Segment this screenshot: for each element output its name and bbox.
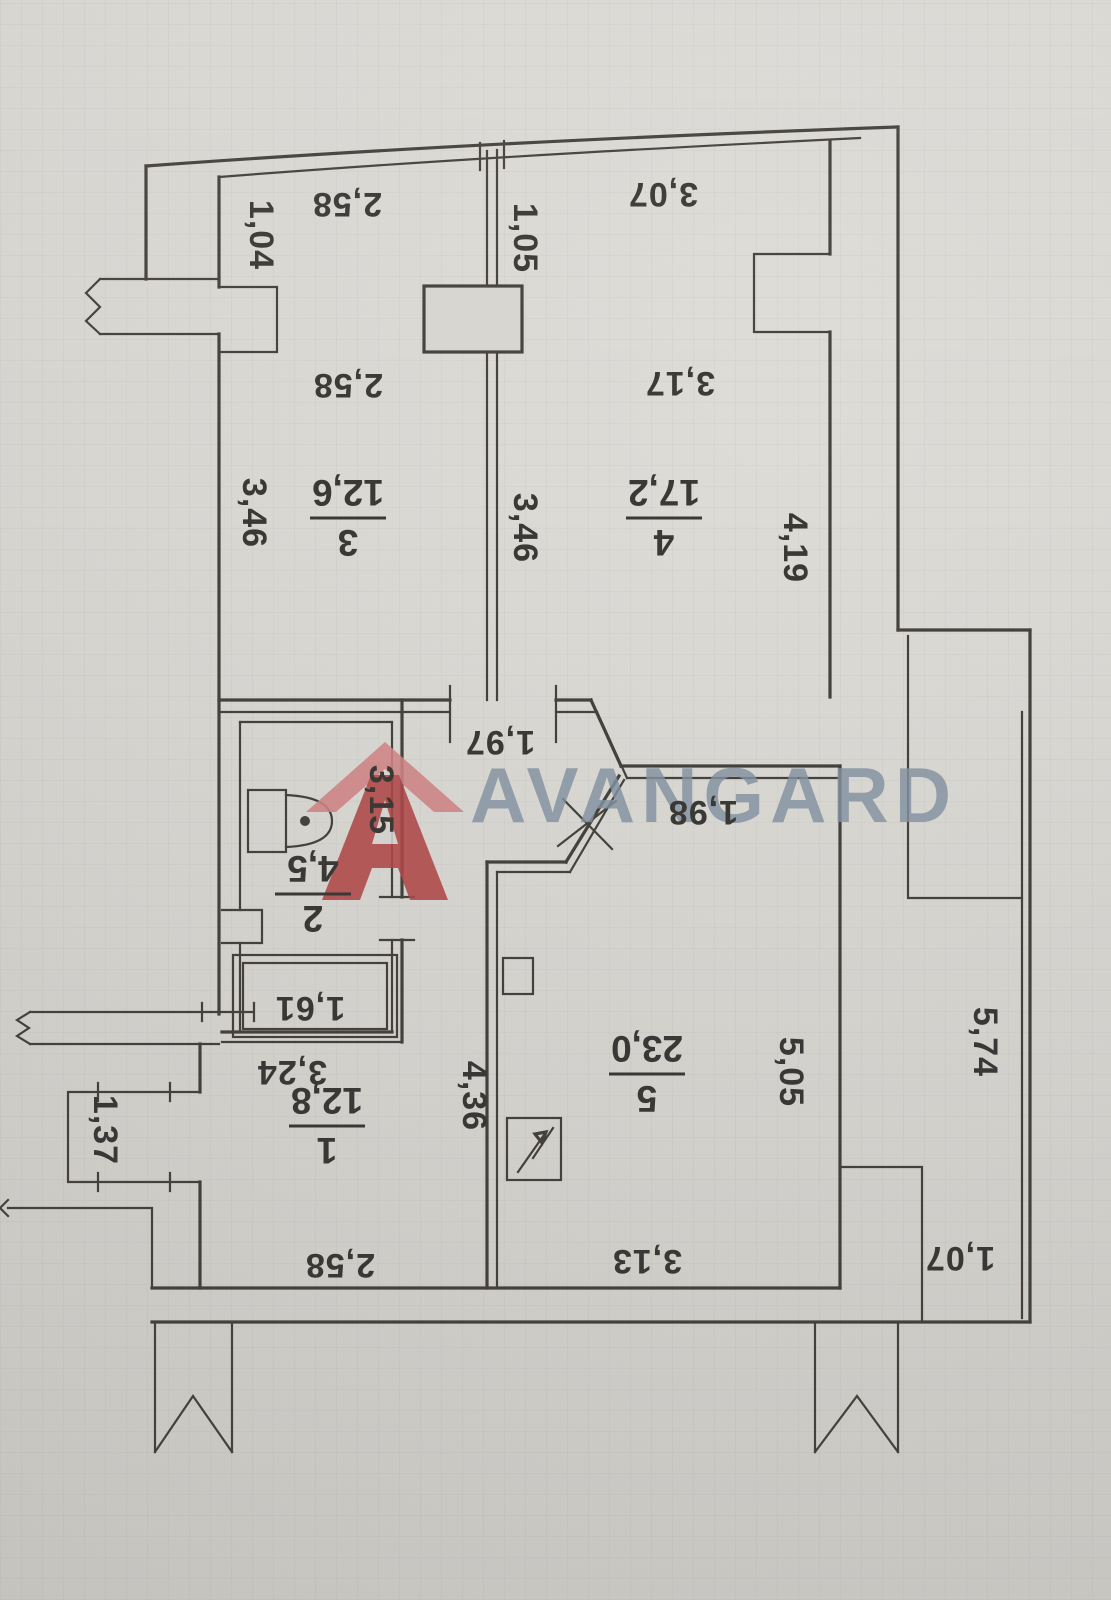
- wall-stub-br: [815, 1322, 898, 1452]
- toilet-drain-icon: [300, 816, 310, 826]
- wall-break-icon: [155, 1396, 232, 1452]
- room-label-4: 417,2: [626, 472, 702, 563]
- dimension-label: 1,61: [275, 989, 345, 1027]
- room-number: 3: [338, 522, 359, 563]
- dimension-label: 1,97: [465, 723, 535, 761]
- room-number: 5: [637, 1078, 658, 1119]
- room-label-5: 523,0: [609, 1028, 685, 1119]
- watermark: AVANGARD: [306, 742, 957, 900]
- wall-stub-bl: [155, 1322, 232, 1452]
- dimension-label: 5,05: [772, 1037, 810, 1107]
- toilet-icon: [248, 790, 286, 852]
- dimension-label: 1,98: [668, 793, 738, 831]
- bathroom-wall-notch: [222, 910, 262, 943]
- room-label-3: 312,6: [310, 472, 386, 563]
- dimension-label: 3,46: [235, 478, 273, 548]
- room-area: 12,6: [312, 472, 384, 513]
- room-area: 12,8: [291, 1080, 363, 1121]
- dimension-label: 2,58: [313, 366, 383, 404]
- room-area: 4,5: [287, 848, 338, 889]
- wall-break-icon: [0, 1200, 8, 1216]
- room-number: 1: [317, 1130, 338, 1171]
- vent-shaft-box: [424, 286, 522, 352]
- wall-column-stub: [840, 1167, 922, 1322]
- wall-niche: [754, 254, 830, 332]
- dimension-label: 1,37: [86, 1095, 124, 1165]
- dimension-label: 1,05: [506, 203, 544, 273]
- room-area: 23,0: [611, 1028, 683, 1069]
- room-label-1: 112,8: [289, 1080, 365, 1171]
- room-label-2: 24,5: [275, 848, 351, 939]
- dimension-label: 1,07: [925, 1239, 995, 1277]
- room-area: 17,2: [628, 472, 700, 513]
- floor-plan-drawing: AVANGARD 2,581,043,071,052,583,173,463,4…: [0, 0, 1111, 1600]
- wall-below-balcony: [8, 1208, 152, 1288]
- dimension-label: 1,04: [242, 200, 280, 270]
- dimension-label: 3,15: [362, 765, 400, 835]
- wall-break-icon: [815, 1396, 898, 1452]
- dimension-label: 4,36: [455, 1061, 493, 1131]
- room-number: 2: [303, 898, 324, 939]
- dimension-label: 4,19: [776, 513, 814, 583]
- floor-plan-scan: AVANGARD 2,581,043,071,052,583,173,463,4…: [0, 0, 1111, 1600]
- dimension-label: 3,17: [645, 364, 715, 402]
- dimension-label: 2,58: [312, 185, 382, 223]
- dimension-label: 3,13: [612, 1242, 682, 1280]
- wall-top-inner: [219, 138, 860, 177]
- dimension-label: 2,58: [305, 1246, 375, 1284]
- dimension-label: 3,07: [628, 175, 698, 213]
- dimension-label: 3,46: [506, 493, 544, 563]
- wall-fixture-box: [503, 958, 533, 994]
- wall-pier: [219, 287, 277, 352]
- wall-top-outer: [146, 127, 898, 166]
- dimension-tick: [202, 1003, 254, 1021]
- room-number: 4: [653, 522, 674, 563]
- wall-break-icon: [17, 1012, 30, 1044]
- wall-break-icon: [86, 279, 100, 334]
- dimension-label: 5,74: [966, 1007, 1004, 1077]
